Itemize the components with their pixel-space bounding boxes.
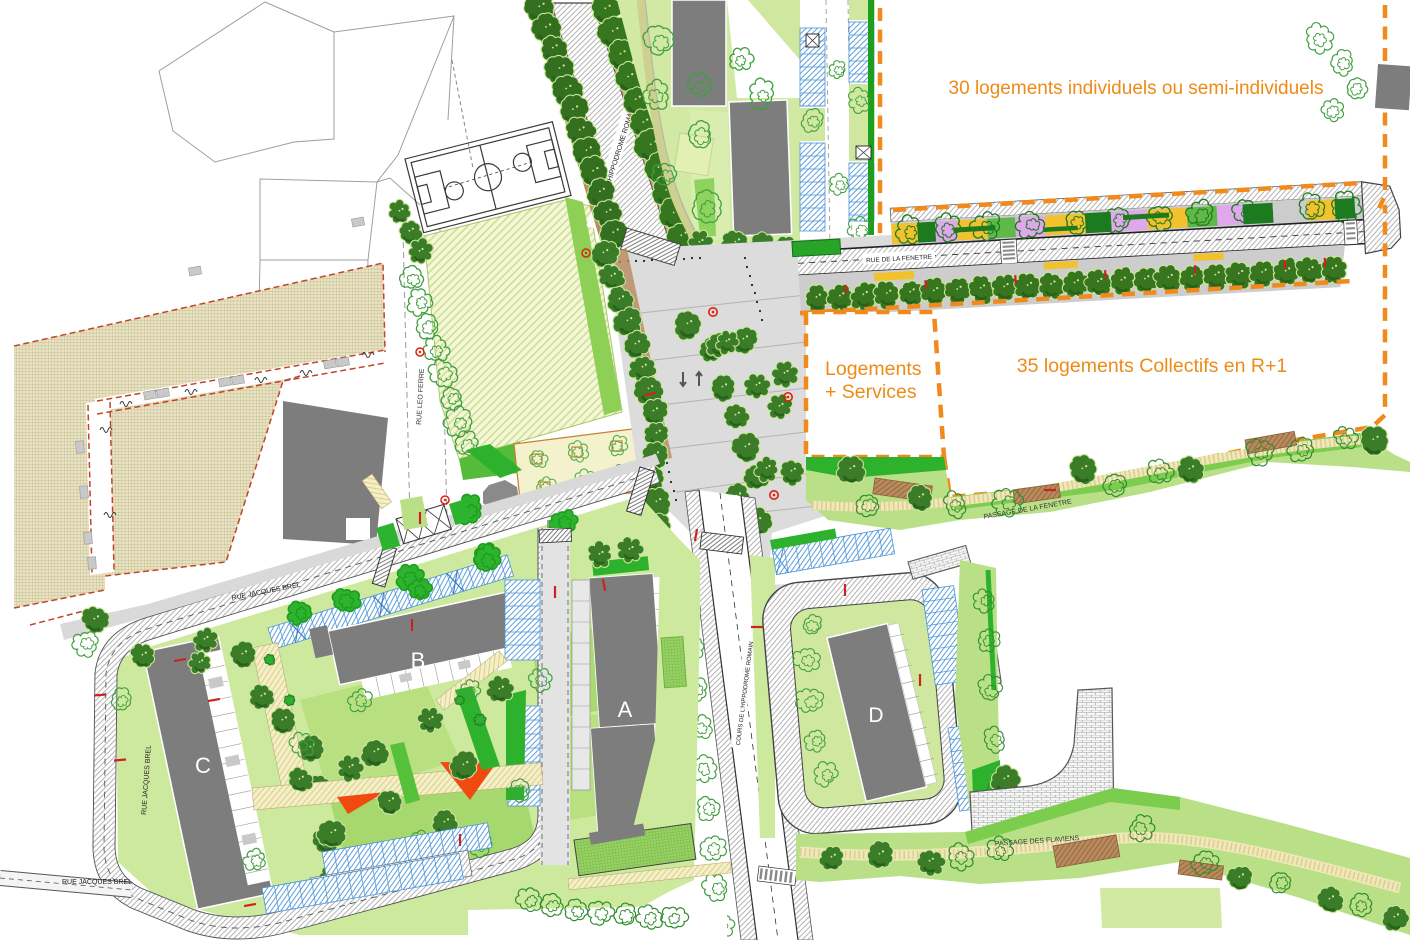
svg-text:D: D (868, 704, 883, 727)
svg-text:C: C (195, 753, 211, 778)
svg-text:+ Services: + Services (825, 381, 917, 403)
svg-text:B: B (411, 648, 426, 673)
svg-text:30 logements individuels ou se: 30 logements individuels ou semi-individ… (949, 78, 1324, 99)
svg-text:A: A (618, 697, 633, 722)
svg-text:Logements: Logements (825, 358, 922, 380)
svg-text:RUE JACQUES BREL: RUE JACQUES BREL (62, 879, 132, 886)
svg-text:35 logements Collectifs en R+1: 35 logements Collectifs en R+1 (1017, 355, 1287, 377)
